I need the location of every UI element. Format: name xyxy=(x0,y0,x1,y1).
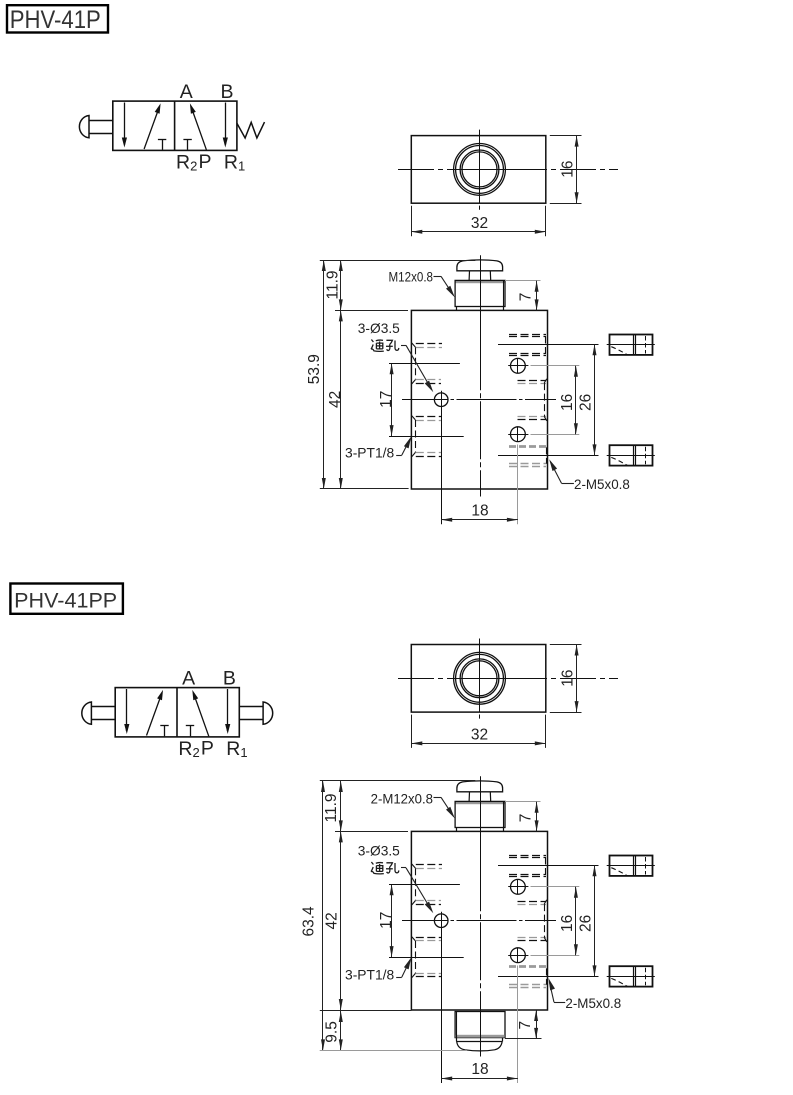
svg-text:16: 16 xyxy=(559,161,576,178)
svg-text:7: 7 xyxy=(517,1021,534,1030)
svg-text:18: 18 xyxy=(471,1061,488,1078)
svg-text:2-M5x0.8: 2-M5x0.8 xyxy=(565,996,621,1011)
svg-text:7: 7 xyxy=(517,293,534,302)
svg-text:26: 26 xyxy=(578,394,595,411)
svg-text:16: 16 xyxy=(559,394,576,411)
svg-text:26: 26 xyxy=(578,915,595,932)
svg-text:P: P xyxy=(201,737,214,759)
svg-text:42: 42 xyxy=(327,391,344,408)
svg-text:B: B xyxy=(220,81,233,103)
svg-text:A: A xyxy=(182,668,195,690)
svg-text:P: P xyxy=(198,151,211,173)
svg-text:32: 32 xyxy=(471,215,488,232)
svg-text:18: 18 xyxy=(471,502,488,519)
svg-text:16: 16 xyxy=(559,669,576,686)
svg-text:R1: R1 xyxy=(226,738,247,760)
svg-text:11.9: 11.9 xyxy=(325,270,342,299)
svg-text:17: 17 xyxy=(378,912,395,929)
svg-text:3-Ø3.5: 3-Ø3.5 xyxy=(358,321,400,336)
svg-text:PHV-41PP: PHV-41PP xyxy=(14,589,117,613)
svg-text:R1: R1 xyxy=(224,151,245,173)
svg-text:17: 17 xyxy=(378,391,395,408)
svg-text:R2: R2 xyxy=(176,151,197,173)
svg-text:2-M12x0.8: 2-M12x0.8 xyxy=(371,791,434,806)
svg-text:M12x0.8: M12x0.8 xyxy=(389,270,434,285)
svg-text:16: 16 xyxy=(559,915,576,932)
svg-text:2-M5x0.8: 2-M5x0.8 xyxy=(574,477,630,492)
svg-text:A: A xyxy=(180,81,193,103)
svg-text:32: 32 xyxy=(471,727,488,744)
svg-text:9.5: 9.5 xyxy=(323,1021,340,1043)
svg-text:3-Ø3.5: 3-Ø3.5 xyxy=(358,844,400,859)
svg-text:63.4: 63.4 xyxy=(301,906,318,937)
svg-text:B: B xyxy=(223,668,236,690)
svg-text:3-PT1/8: 3-PT1/8 xyxy=(345,967,395,982)
svg-text:53.9: 53.9 xyxy=(306,354,323,384)
svg-text:3-PT1/8: 3-PT1/8 xyxy=(345,445,395,460)
svg-text:R2: R2 xyxy=(178,738,199,760)
svg-text:11.9: 11.9 xyxy=(323,793,340,822)
svg-text:PHV-41P: PHV-41P xyxy=(10,6,101,34)
svg-text:42: 42 xyxy=(324,912,341,929)
svg-text:7: 7 xyxy=(517,814,534,823)
